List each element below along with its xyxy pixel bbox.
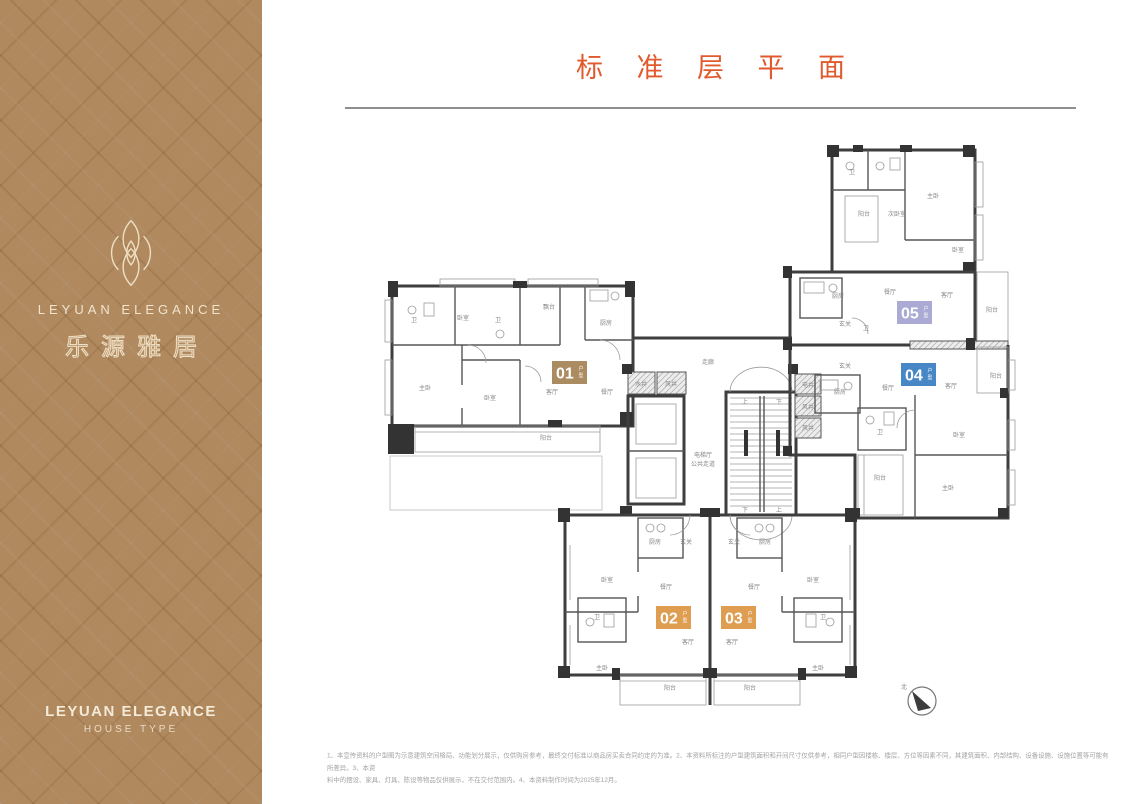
brand-sidebar: LEYUAN ELEGANCE 乐源雅居 LEYUAN ELEGANCE HOU… — [0, 0, 262, 804]
room-label: 阳台 — [986, 306, 998, 314]
unit-badge-04: 04户型 — [901, 363, 936, 386]
room-label: 客厅 — [945, 382, 957, 390]
disclaimer-line-1: 1、本宣传资料的户型图为示意建筑空间格局、功能划分展示，仅供购房参考，最终交付标… — [327, 753, 1109, 772]
sidebar-footer-subtitle: HOUSE TYPE — [0, 724, 262, 735]
room-label: 卫 — [863, 325, 869, 332]
compass-north-label: 北 — [901, 683, 907, 691]
compass: 北 — [901, 683, 936, 715]
room-label: 厨房 — [600, 319, 612, 327]
room-label: 卧室 — [484, 394, 496, 402]
room-label: 公共走道 — [691, 460, 715, 468]
room-label: 阳台 — [990, 372, 1002, 380]
svg-text:05: 05 — [901, 306, 919, 323]
unit-badge-03: 03户型 — [721, 606, 756, 629]
room-label: 阳台 — [874, 474, 886, 482]
room-label: 主卧 — [419, 384, 431, 392]
room-label: 厨房 — [832, 292, 844, 300]
room-label: 阳台 — [664, 684, 676, 692]
disclaimer: 1、本宣传资料的户型图为示意建筑空间格局、功能划分展示，仅供购房参考，最终交付标… — [327, 750, 1114, 786]
svg-text:型: 型 — [578, 372, 583, 379]
walls-layer — [385, 145, 1015, 705]
room-label: 客厅 — [941, 291, 953, 299]
svg-text:型: 型 — [747, 617, 752, 624]
room-label: 风井 — [802, 424, 814, 432]
room-label: 上 — [776, 506, 782, 514]
room-label: 卫 — [849, 169, 855, 176]
room-label: 卧室 — [457, 314, 469, 322]
room-label: 厨房 — [834, 388, 846, 396]
svg-text:04: 04 — [905, 368, 923, 385]
room-label: 主卧 — [596, 664, 608, 672]
room-label: 次卧室 — [888, 210, 906, 218]
room-label: 阳台 — [858, 210, 870, 218]
room-label: 卫 — [594, 614, 600, 621]
room-label: 电梯厅 — [694, 451, 712, 459]
svg-text:户: 户 — [923, 305, 928, 312]
room-label: 厨房 — [759, 538, 771, 546]
brochure-page: { "header": { "title": "标 准 层 平 面" }, "s… — [0, 0, 1134, 804]
room-label: 餐厅 — [660, 583, 672, 591]
room-label: 餐厅 — [748, 583, 760, 591]
room-label: 主卧 — [942, 484, 954, 492]
unit-badge-05: 05户型 — [897, 301, 932, 324]
room-labels-layer: 卫卧室卫飘台厨房主卧卧室客厅餐厅阳台走廊水井风井电井风井风井电梯厅公共走道上下下… — [411, 169, 1002, 692]
unit-badge-02: 02户型 — [656, 606, 691, 629]
brand-name-cn: 乐源雅居 — [0, 327, 262, 362]
brand-name-en: LEYUAN ELEGANCE — [0, 302, 262, 317]
room-label: 卧室 — [953, 431, 965, 439]
sidebar-footer: LEYUAN ELEGANCE HOUSE TYPE — [0, 703, 262, 735]
room-label: 主卧 — [927, 192, 939, 200]
room-label: 水井 — [635, 380, 647, 388]
svg-text:型: 型 — [927, 374, 932, 381]
svg-text:03: 03 — [725, 611, 743, 628]
room-label: 餐厅 — [601, 388, 613, 396]
title-divider — [345, 107, 1076, 109]
room-label: 电井 — [802, 381, 814, 389]
room-label: 风井 — [802, 403, 814, 411]
disclaimer-line-2: 料中的摆设、家具、灯具、陈设等物品仅供展示，不在交付范围内。4、本资料制作时间为… — [327, 777, 621, 784]
room-label: 厨房 — [649, 538, 661, 546]
room-label: 上 — [742, 398, 748, 406]
room-label: 玄关 — [680, 538, 692, 546]
svg-text:户: 户 — [682, 610, 687, 617]
room-label: 客厅 — [682, 638, 694, 646]
svg-text:型: 型 — [923, 312, 928, 319]
room-label: 卧室 — [601, 576, 613, 584]
room-label: 玄关 — [839, 320, 851, 328]
room-label: 风井 — [665, 380, 677, 388]
svg-text:01: 01 — [556, 366, 574, 383]
svg-text:户: 户 — [927, 367, 932, 374]
svg-text:型: 型 — [682, 617, 687, 624]
room-label: 餐厅 — [882, 384, 894, 392]
room-label: 卫 — [877, 429, 883, 436]
lotus-logo-icon — [99, 218, 163, 288]
room-label: 飘台 — [543, 303, 555, 311]
floor-plan: 北 01户型02户型03户型04户型05户型 卫卧室卫飘台厨房主卧卧室客厅餐厅阳… — [340, 130, 1100, 740]
room-label: 玄关 — [839, 362, 851, 370]
room-label: 阳台 — [744, 684, 756, 692]
unit-badge-01: 01户型 — [552, 361, 587, 384]
room-label: 客厅 — [546, 388, 558, 396]
svg-text:户: 户 — [578, 365, 583, 372]
svg-text:02: 02 — [660, 611, 678, 628]
room-label: 走廊 — [702, 358, 714, 366]
room-label: 卧室 — [807, 576, 819, 584]
room-label: 卫 — [820, 614, 826, 621]
sidebar-footer-title: LEYUAN ELEGANCE — [0, 703, 262, 720]
room-label: 阳台 — [540, 434, 552, 442]
room-label: 卫 — [411, 317, 417, 324]
room-label: 下 — [742, 507, 748, 514]
room-label: 下 — [776, 399, 782, 406]
room-label: 餐厅 — [884, 288, 896, 296]
page-title: 标 准 层 平 面 — [345, 46, 1076, 85]
room-label: 主卧 — [812, 664, 824, 672]
room-label: 卧室 — [952, 246, 964, 254]
room-label: 玄关 — [728, 538, 740, 546]
svg-text:户: 户 — [747, 610, 752, 617]
room-label: 卫 — [495, 317, 501, 324]
brand-block: LEYUAN ELEGANCE 乐源雅居 — [0, 218, 262, 362]
room-label: 客厅 — [726, 638, 738, 646]
